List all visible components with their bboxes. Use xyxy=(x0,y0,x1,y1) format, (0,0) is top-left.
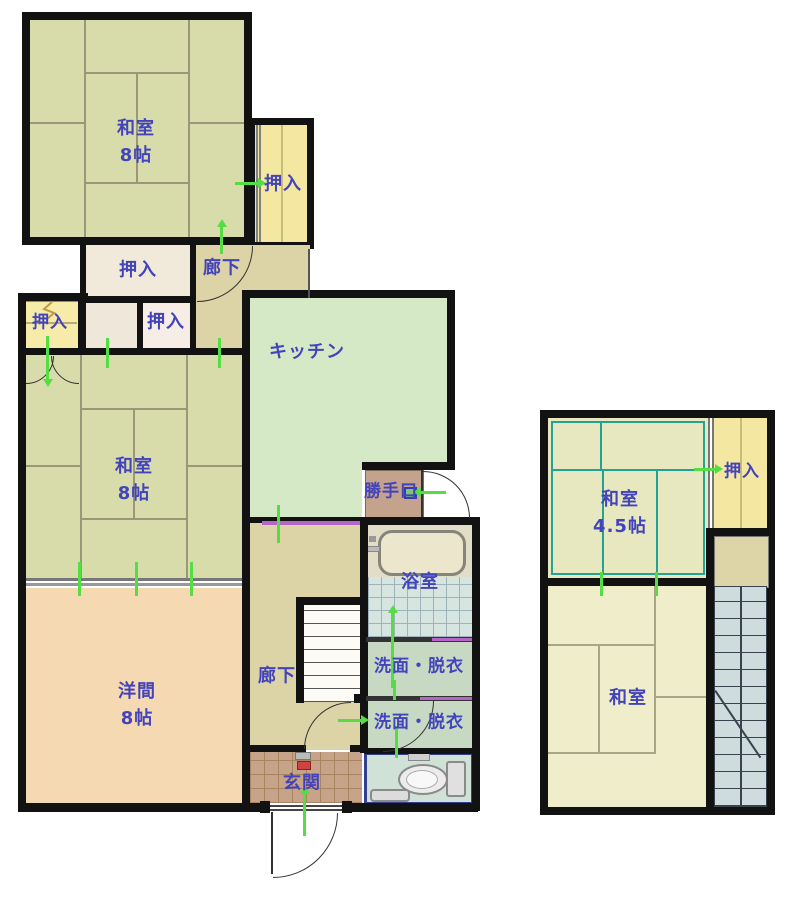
room-size: 4.5帖 xyxy=(593,513,647,540)
tatami-line xyxy=(598,644,600,754)
wall xyxy=(296,597,364,605)
flow-arrowhead xyxy=(217,219,227,227)
closet-label-middle: 押入 xyxy=(147,309,185,336)
sliding-door-marker xyxy=(432,638,472,641)
tatami-line xyxy=(30,122,84,124)
door-leaf-entrance xyxy=(271,812,273,874)
flow-marker xyxy=(277,505,280,543)
wall xyxy=(18,803,478,812)
wall xyxy=(18,293,26,811)
flow-marker xyxy=(655,572,658,596)
toilet-window xyxy=(408,753,430,761)
flow-marker xyxy=(220,226,223,254)
wall xyxy=(706,528,714,807)
tatami-line-teal xyxy=(551,469,705,471)
closet-label-upper: 押入 xyxy=(119,257,157,284)
toilet-bowl-inner xyxy=(406,770,438,789)
wall xyxy=(20,348,250,355)
room-label-kitchen: キッチン xyxy=(269,339,345,366)
wall xyxy=(80,296,192,303)
alcove-middle xyxy=(86,302,137,352)
closet-label-annex: 押入 xyxy=(264,171,302,198)
staircase-main xyxy=(304,605,362,702)
flow-arrowhead xyxy=(388,605,398,613)
flow-marker xyxy=(600,572,603,596)
wall xyxy=(190,240,196,352)
room-name: 洋間 xyxy=(118,678,156,705)
genkan-door-frame xyxy=(266,809,346,811)
room-label-genkan: 玄関 xyxy=(283,770,321,797)
wall xyxy=(242,290,455,298)
flow-marker xyxy=(106,338,109,368)
wall xyxy=(447,290,455,470)
bath-faucet xyxy=(366,546,380,552)
wall xyxy=(242,290,250,811)
room-size: 8帖 xyxy=(117,142,155,169)
flow-marker xyxy=(338,719,362,722)
stair-landing xyxy=(714,536,769,588)
flow-marker xyxy=(303,792,306,836)
tatami-line xyxy=(548,752,656,754)
door-label-katteguchi: 勝手口 xyxy=(364,479,418,506)
wall xyxy=(242,745,306,752)
room-label-washitsu-right: 和室 xyxy=(609,685,647,712)
wall xyxy=(364,748,474,754)
genkan-shoe-shelf-icon xyxy=(295,752,311,760)
floorplan-stage: 和室 8帖 押入 押入 廊下 押入 押入 キッチン 和室 8帖 勝手口 浴室 洗… xyxy=(0,0,800,915)
flow-arrowhead xyxy=(715,464,723,474)
room-label-washitsu-top: 和室 8帖 xyxy=(117,115,155,169)
toilet-washbasin xyxy=(370,789,410,802)
tatami-line xyxy=(654,586,656,754)
tatami-line xyxy=(84,20,86,237)
sliding-door-track xyxy=(708,418,710,528)
room-size: 8帖 xyxy=(118,705,156,732)
corridor-label-lower: 廊下 xyxy=(258,663,296,690)
closet-label-right: 押入 xyxy=(724,459,760,486)
room-label-washitsu-45: 和室 4.5帖 xyxy=(593,486,647,540)
wall xyxy=(362,462,455,470)
closet-label-small-left: 押入 xyxy=(32,310,68,337)
flow-marker xyxy=(235,182,259,185)
wall xyxy=(137,302,143,352)
flow-marker xyxy=(190,562,193,596)
room-label-senmen-lower: 洗面・脱衣 xyxy=(374,710,464,737)
tatami-line-teal xyxy=(656,471,658,575)
flow-marker xyxy=(78,562,81,596)
room-size: 8帖 xyxy=(115,480,153,507)
flow-arrowhead xyxy=(43,379,53,387)
wall xyxy=(296,597,304,703)
wall xyxy=(80,245,86,303)
room-label-senmen-upper: 洗面・脱衣 xyxy=(374,654,464,681)
wall xyxy=(472,517,480,811)
flow-marker xyxy=(420,491,446,494)
bath-faucet-knob xyxy=(369,536,376,542)
tatami-line xyxy=(548,644,656,646)
wall xyxy=(706,528,767,536)
door-jamb xyxy=(342,801,352,813)
tatami-line xyxy=(188,122,244,124)
wall xyxy=(350,745,366,752)
sliding-door-track xyxy=(26,583,242,586)
tatami-line xyxy=(186,465,242,467)
wall xyxy=(540,578,714,586)
toilet-tank xyxy=(446,761,466,797)
genkan-door-frame xyxy=(266,805,346,807)
flow-marker xyxy=(694,468,716,471)
room-label-youma: 洋間 8帖 xyxy=(118,678,156,732)
flow-marker xyxy=(218,338,221,368)
sliding-door-track xyxy=(26,578,242,581)
flow-marker xyxy=(393,680,396,700)
room-name: 和室 xyxy=(117,115,155,142)
wall xyxy=(360,517,480,525)
room-label-bathroom: 浴室 xyxy=(401,569,439,596)
corridor-label-upper: 廊下 xyxy=(203,255,241,282)
stair-center-line xyxy=(740,586,742,807)
flow-marker xyxy=(46,336,49,380)
flow-marker xyxy=(135,562,138,596)
flow-arrowhead xyxy=(361,715,369,725)
room-label-washitsu-mid: 和室 8帖 xyxy=(115,453,153,507)
room-kitchen xyxy=(250,462,362,517)
door-jamb xyxy=(260,801,270,813)
sliding-door-marker xyxy=(420,697,472,700)
room-name: 和室 xyxy=(115,453,153,480)
tatami-line xyxy=(80,355,82,578)
tatami-line xyxy=(26,465,80,467)
tatami-line-teal xyxy=(600,421,602,471)
wall-thin xyxy=(308,249,310,298)
tatami-line xyxy=(188,20,190,237)
tatami-line xyxy=(654,696,706,698)
room-kitchen xyxy=(250,298,448,462)
room-name: 和室 xyxy=(593,486,647,513)
